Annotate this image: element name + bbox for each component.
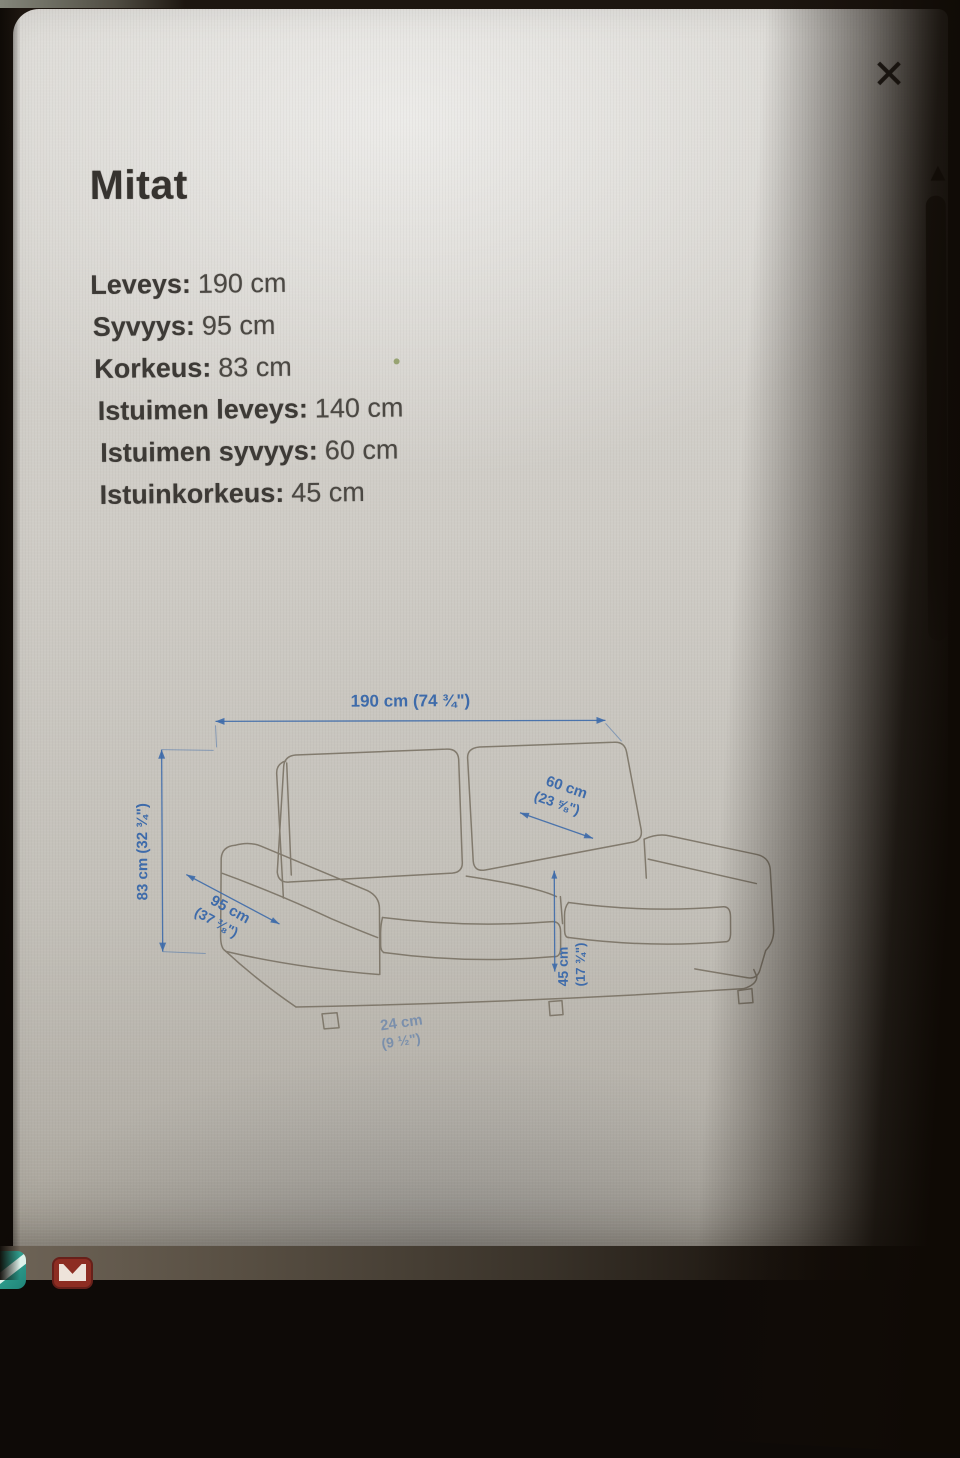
- sofa-dimension-diagram: 190 cm (74 ¾") 83 cm (32 ¾") 95 cm (37 ⅜…: [115, 673, 837, 1087]
- sofa-sketch: [220, 741, 775, 1029]
- envelope-icon: [59, 1264, 86, 1281]
- page-title: Mitat: [90, 162, 188, 210]
- panel-content: Mitat Leveys:190 cm Syvyys:95 cm Korkeus…: [13, 9, 948, 1248]
- dimension-row-seat-height: Istuinkorkeus:45 cm: [99, 470, 404, 515]
- dock-app-icon-teal[interactable]: [0, 1251, 26, 1289]
- scrollbar-thumb[interactable]: [926, 196, 948, 641]
- dimension-row-width: Leveys:190 cm: [90, 261, 402, 307]
- screen-photo: Mitat Leveys:190 cm Syvyys:95 cm Korkeus…: [0, 0, 960, 1280]
- dimension-row-seat-width: Istuimen leveys:140 cm: [98, 386, 404, 431]
- scroll-up-arrow-icon[interactable]: ▲: [926, 161, 948, 186]
- seat-height-dimension-label-2: (17 ¾"): [573, 943, 588, 987]
- close-icon[interactable]: ✕: [866, 52, 912, 98]
- top-edge-sliver: [0, 0, 185, 8]
- seat-height-dimension-label: 45 cm: [555, 947, 571, 987]
- armrest-dimension-label: 24 cm (9 ½"): [378, 1011, 426, 1051]
- dimension-list: Leveys:190 cm Syvyys:95 cm Korkeus:83 cm…: [90, 261, 404, 517]
- width-dimension-label: 190 cm (74 ¾"): [351, 691, 471, 711]
- height-dimension-label: 83 cm (32 ¾"): [134, 803, 152, 900]
- seat-depth-dimension-label: 60 cm (23 ⅝"): [532, 771, 589, 819]
- depth-dimension-label: 95 cm (37 ⅜"): [192, 888, 253, 942]
- dimension-row-seat-depth: Istuimen syvyys:60 cm: [100, 428, 404, 473]
- dimension-row-height: Korkeus:83 cm: [94, 344, 403, 389]
- dock-app-icon-mail[interactable]: [52, 1257, 93, 1289]
- dimension-row-depth: Syvyys:95 cm: [93, 303, 403, 349]
- bottom-dock-band: [0, 1246, 960, 1280]
- dimensions-panel: Mitat Leveys:190 cm Syvyys:95 cm Korkeus…: [13, 9, 948, 1248]
- teal-icon-slash: [0, 1252, 26, 1289]
- dust-speck: [394, 358, 400, 364]
